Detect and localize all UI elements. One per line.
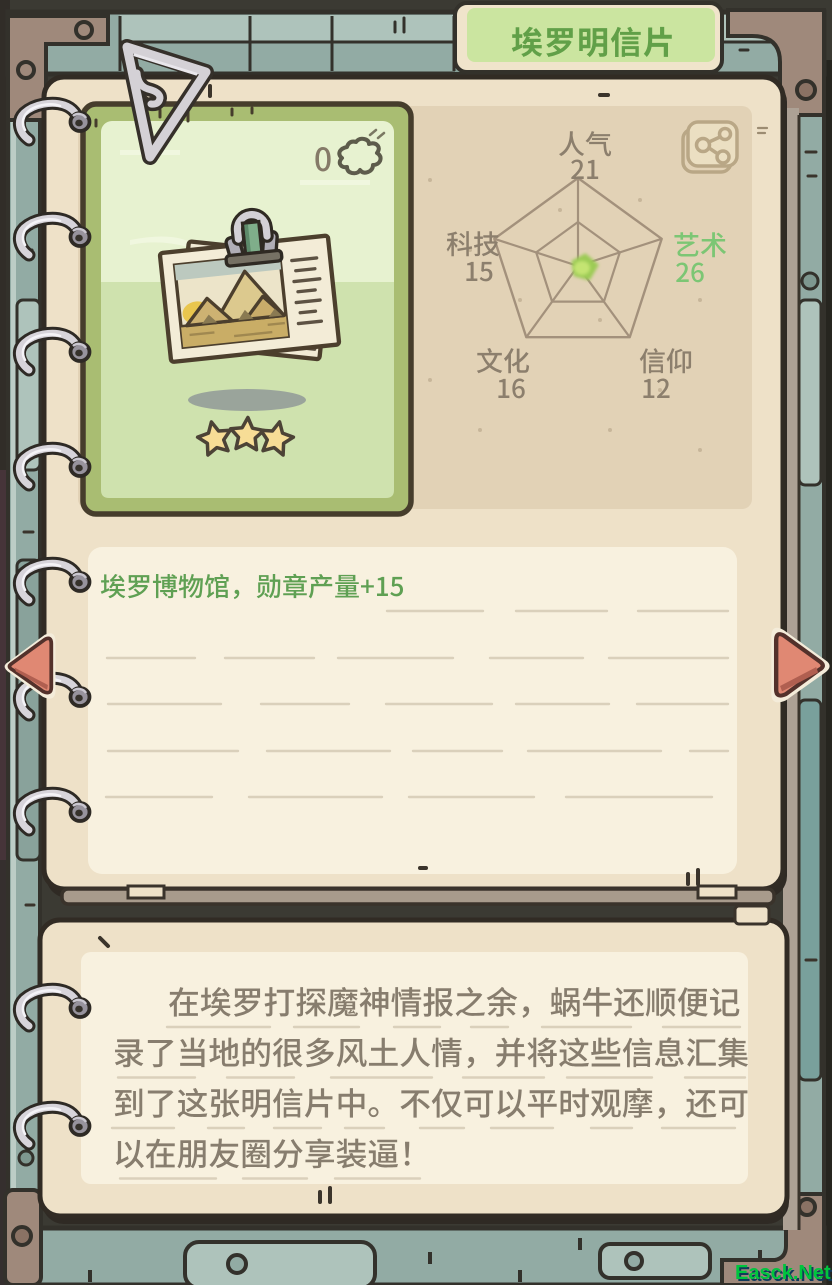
svg-text:Easck.Net: Easck.Net	[735, 1262, 831, 1284]
